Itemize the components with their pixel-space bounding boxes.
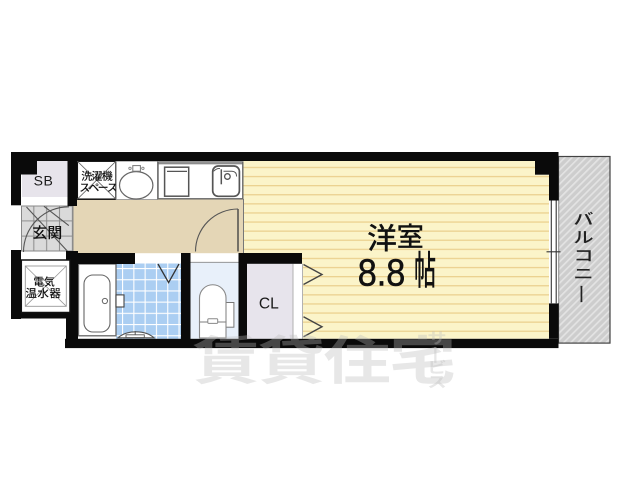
svg-text:8.8: 8.8	[358, 251, 406, 294]
svg-text:CL: CL	[259, 296, 279, 313]
svg-text:SB: SB	[34, 172, 54, 188]
